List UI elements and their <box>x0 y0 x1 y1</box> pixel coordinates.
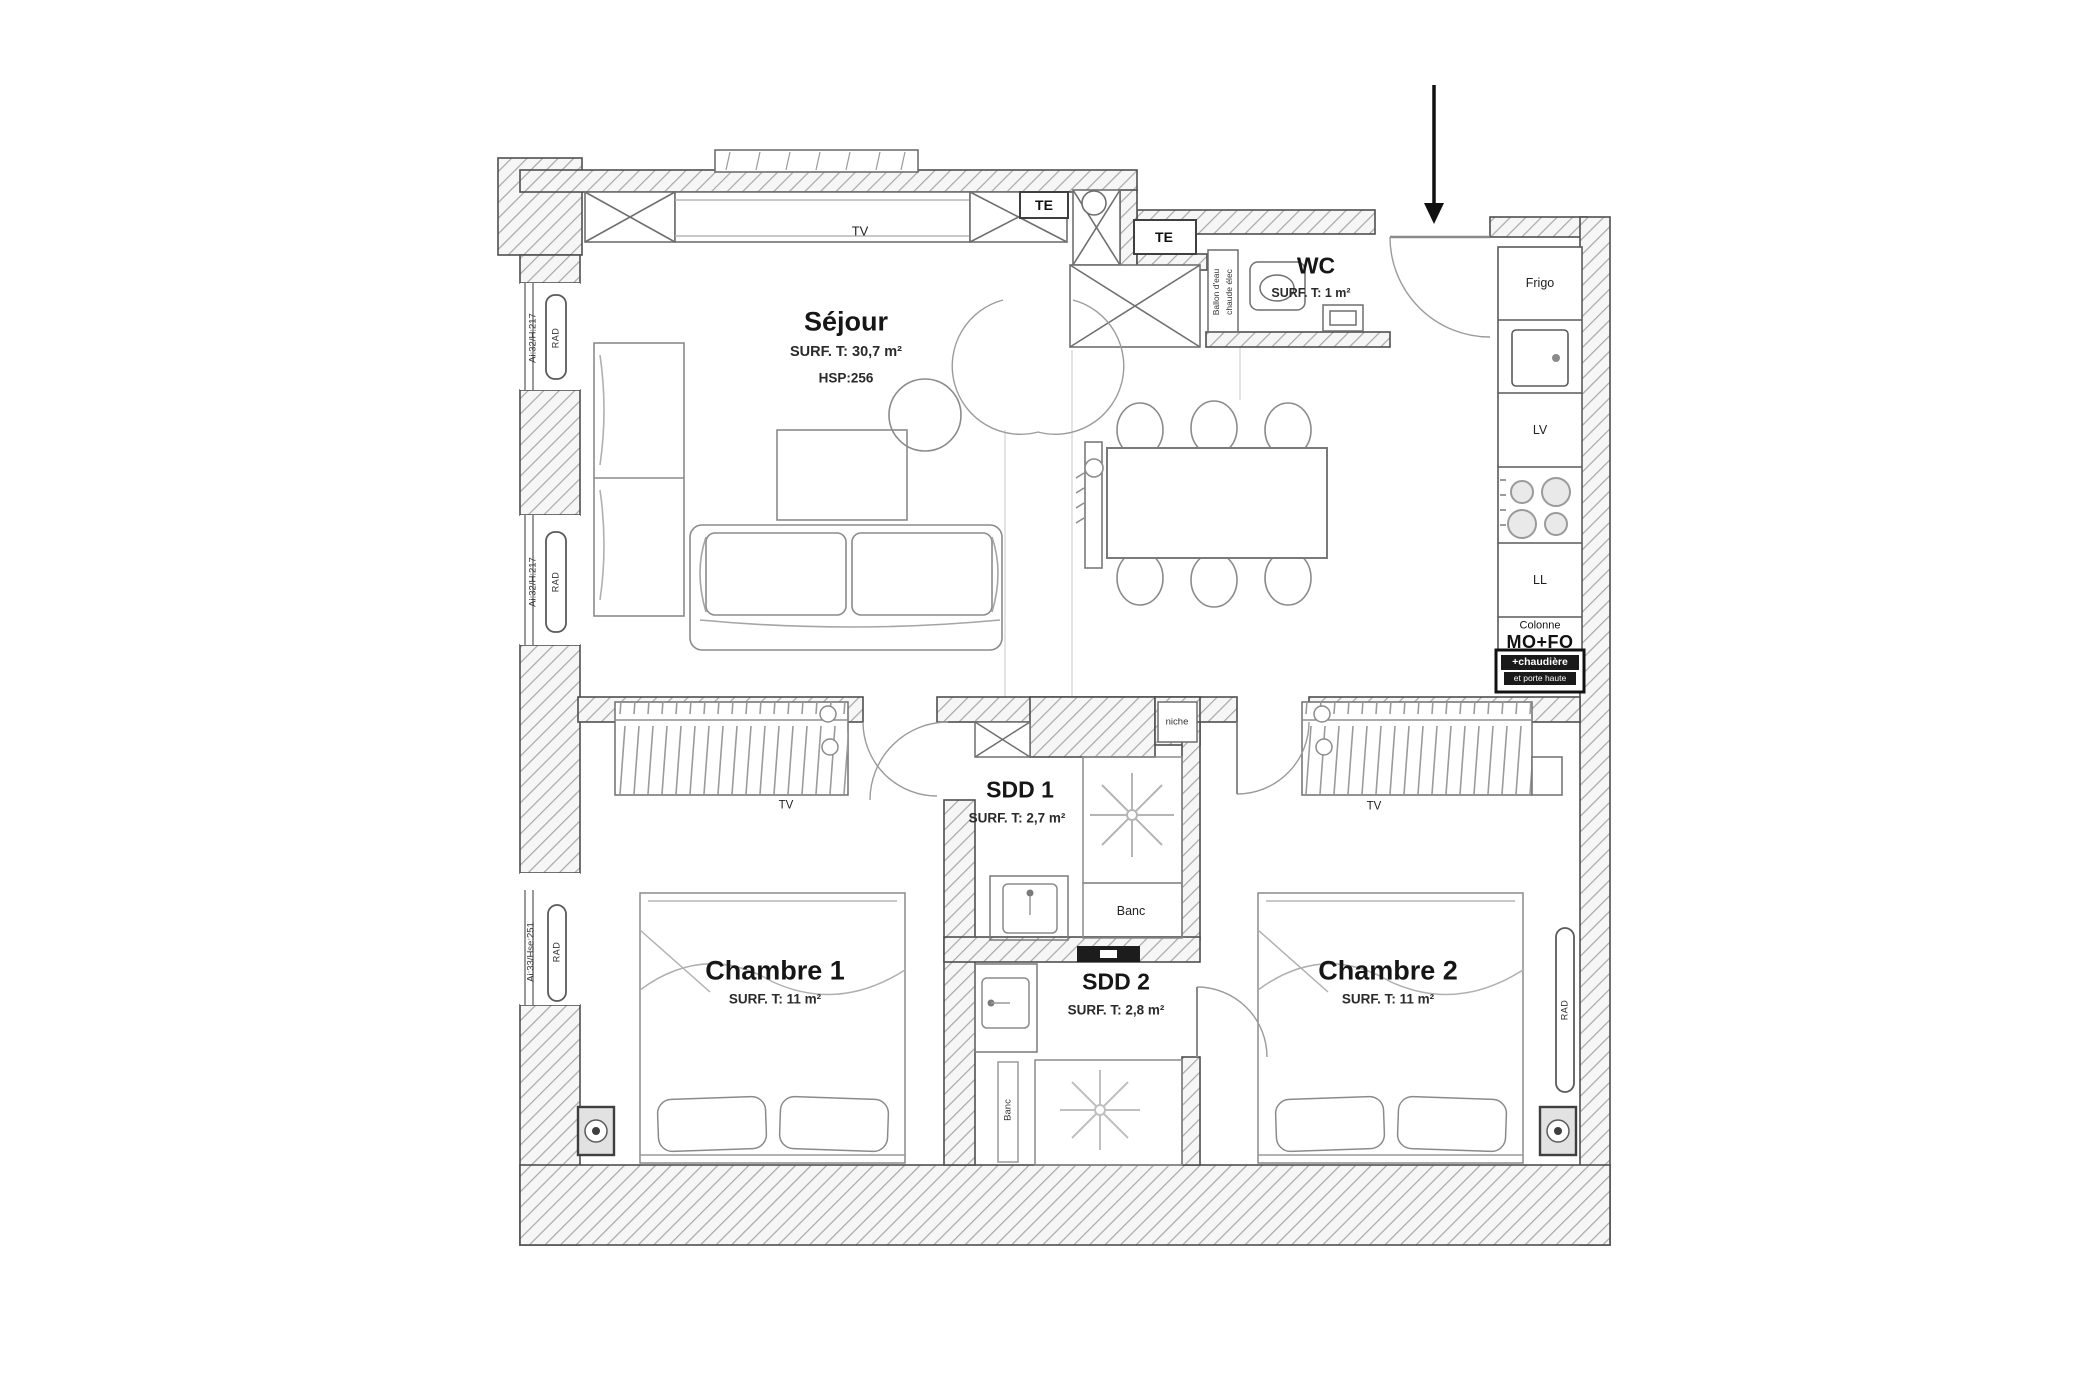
chambre2-bed <box>1258 893 1523 1163</box>
label-chaudiere: +chaudière <box>1512 657 1568 668</box>
chair <box>1191 401 1237 455</box>
label-rad-chambre2: RAD <box>1561 1000 1570 1021</box>
label-rad-window-bottom: RAD <box>553 942 562 963</box>
entrance-door-arc <box>1390 237 1490 337</box>
label-niche: niche <box>1166 717 1189 727</box>
coffee-table <box>777 430 907 520</box>
sdd2-shower <box>1035 1060 1182 1165</box>
room-surface-sdd1: SURF. T: 2,7 m² <box>969 811 1066 825</box>
chair <box>1117 551 1163 605</box>
label-mo-fo: MO+FO <box>1506 633 1573 651</box>
chair <box>1265 551 1311 605</box>
chambre1-door-arc <box>863 722 937 796</box>
shower-star <box>1060 1070 1140 1150</box>
label-ballon-line2: chaude élec <box>1225 269 1234 315</box>
chambre2-door-arc <box>1237 722 1309 794</box>
wall-thick-block <box>1030 697 1155 757</box>
label-rad-window-mid: RAD <box>552 572 561 593</box>
towel-radiator <box>1077 946 1140 962</box>
chambre1-wardrobe <box>615 702 848 795</box>
label-lv: LV <box>1533 424 1547 437</box>
chambre1-room <box>578 702 905 1163</box>
room-surface-wc: SURF. T: 1 m² <box>1271 287 1350 300</box>
dining-table <box>1107 448 1327 558</box>
sdd2-door-arc <box>1197 987 1267 1057</box>
label-ballon-line1: Ballon d'eau <box>1212 269 1221 316</box>
label-rad-window-top: RAD <box>552 328 561 349</box>
label-colonne: Colonne <box>1520 621 1561 632</box>
room-label-sdd1: SDD 1 <box>986 779 1054 802</box>
side-table <box>889 379 961 451</box>
label-porte-haute: et porte haute <box>1514 674 1566 683</box>
chambre2-room <box>1258 702 1576 1163</box>
room-height-sejour: HSP:256 <box>819 371 874 385</box>
sdd1-washbasin <box>990 876 1068 940</box>
room-label-chambre1: Chambre 1 <box>705 958 845 985</box>
sdd2-washbasin <box>975 964 1037 1052</box>
chair <box>1191 553 1237 607</box>
wc-sink <box>1323 305 1363 331</box>
sdd2-room <box>975 946 1182 1165</box>
shower-star <box>1090 773 1174 857</box>
dining-radiator <box>1076 442 1103 568</box>
nightstand-lamp <box>1540 1107 1576 1155</box>
room-label-chambre2: Chambre 2 <box>1318 958 1458 985</box>
chambre1-bed <box>640 893 905 1163</box>
label-frigo: Frigo <box>1526 277 1554 290</box>
entrance-arrow <box>1424 85 1444 224</box>
label-tv-chambre1: TV <box>779 800 794 812</box>
label-tv-chambre2: TV <box>1367 801 1382 813</box>
sofa <box>690 525 1002 650</box>
floor-plan: Séjour SURF. T: 30,7 m² HSP:256 WC SURF.… <box>0 0 2099 1400</box>
room-surface-sejour: SURF. T: 30,7 m² <box>790 345 902 360</box>
sejour-furniture <box>594 343 1002 650</box>
chambre2-wardrobe <box>1302 702 1562 795</box>
room-label-wc: WC <box>1297 255 1335 278</box>
entrance <box>1390 85 1490 337</box>
sdd1-door-arc <box>870 722 948 800</box>
room-surface-sdd2: SURF. T: 2,8 m² <box>1068 1003 1165 1017</box>
armchair-shelf <box>594 343 684 616</box>
room-surface-chambre1: SURF. T: 11 m² <box>729 992 821 1006</box>
label-tv-sejour: TV <box>852 225 869 238</box>
room-label-sejour: Séjour <box>804 309 888 336</box>
nightstand-lamp <box>578 1107 614 1155</box>
room-surface-chambre2: SURF. T: 11 m² <box>1342 992 1434 1006</box>
dining-area <box>1076 401 1327 607</box>
room-label-sdd2: SDD 2 <box>1082 971 1150 994</box>
label-banc-sdd1: Banc <box>1117 905 1146 918</box>
label-window-top-dim: Ai:32/H:217 <box>528 313 538 363</box>
label-banc-sdd2: Banc <box>1003 1099 1013 1121</box>
sejour-cabinets <box>585 150 1068 242</box>
label-te-1: TE <box>1035 198 1053 212</box>
label-window-mid-dim: Ai:32/H:217 <box>528 557 538 607</box>
label-window-bottom-dim: Ai:33/Hse:251 <box>526 922 536 982</box>
label-te-2: TE <box>1155 230 1173 244</box>
label-ll: LL <box>1533 574 1547 587</box>
